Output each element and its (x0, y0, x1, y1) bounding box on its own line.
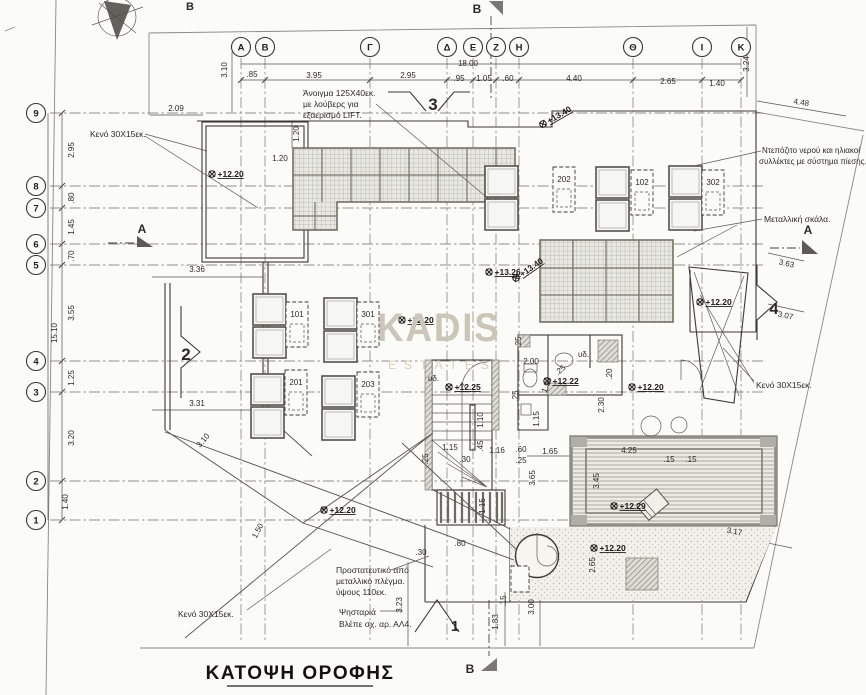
grid-bubble-label: 7 (33, 204, 38, 215)
solar-panel (485, 166, 518, 197)
dim-label: .15 (499, 595, 508, 607)
dim-label: 4.48 (793, 97, 810, 108)
pergola-roof-center (540, 240, 673, 322)
grid-bubble-row: 7 (27, 199, 46, 218)
grid-bubble-label: 1 (33, 516, 39, 527)
unit-number: 301 (361, 310, 375, 319)
dim-label: .15 (685, 455, 697, 464)
dim-label: 2.95 (67, 142, 76, 158)
dim-label: .80 (67, 192, 76, 204)
dim-label: 3.45 (592, 473, 601, 489)
unit-number: 102 (635, 178, 649, 187)
grid-bubble-label: B (262, 43, 269, 54)
elevation-marker: +12.20 (629, 382, 664, 392)
dim-label: .15 (663, 455, 675, 464)
unit-label-box (357, 372, 379, 417)
stool (671, 417, 687, 433)
unit-number: 202 (557, 175, 571, 184)
grid-bubble-column: Γ (361, 38, 380, 57)
section-arrow-a-right (802, 240, 818, 254)
dim-label: .95 (453, 74, 465, 83)
note-text: Προστατευτικό από (336, 565, 409, 575)
grid-bubble-label: 3 (33, 388, 38, 399)
dim-label: 3.10 (220, 62, 229, 78)
detail-number: 4 (770, 301, 779, 318)
dim-label: 1.10 (476, 412, 485, 428)
note-text: Βλέπε σχ. αρ. ΑΛ4. (339, 619, 412, 629)
dim-label: .45 (476, 440, 485, 452)
dim-label: 1.40 (61, 494, 70, 510)
solar-panel (669, 166, 702, 197)
solar-panel (253, 294, 286, 325)
note-text: Κενό 30X15εκ. (756, 380, 812, 390)
elevation-value: +12.20 (706, 297, 733, 307)
dim-label: 1.15 (478, 498, 487, 514)
dim-label: 3.95 (306, 71, 322, 80)
elevation-value: +12.20 (218, 169, 245, 179)
elevation-marker: +12.20 (209, 169, 244, 179)
detail-number: 2 (181, 345, 190, 364)
solar-panel (669, 199, 702, 230)
basin (555, 353, 573, 367)
unit-number: 101 (290, 310, 304, 319)
elevation-value: +12.20 (638, 382, 665, 392)
unit-label-box (631, 170, 653, 215)
note-text: ύψους 110εκ. (336, 587, 387, 597)
unit-number: 201 (289, 378, 303, 387)
dim-label: 3.10 (195, 431, 212, 449)
unit-label-box (286, 302, 308, 347)
dim-label: 2.65 (588, 557, 597, 573)
dim-label: .25 (421, 453, 430, 465)
dim-label: 3.65 (528, 470, 537, 486)
dim-label: 1.15 (532, 411, 541, 427)
plumbing-label: υδ. (428, 374, 439, 383)
elevation-marker: +13.26 (486, 267, 521, 277)
dim-label: .25 (553, 363, 568, 377)
note-text: Μεταλλική σκάλα. (764, 214, 830, 224)
grid-bubble-column: B (256, 38, 275, 57)
grid-bubble-label: Θ (629, 43, 636, 54)
dim-label: 3.63 (778, 258, 796, 270)
grid-bubble-column: E (464, 38, 483, 57)
solar-unit: 302 (669, 166, 724, 230)
dim-label: 2.95 (400, 71, 416, 80)
note-text: Ψησταριά (339, 607, 376, 617)
dim-label: 1.45 (67, 219, 76, 235)
watermark-logo: KADIS (377, 306, 501, 351)
section-letter: B (473, 2, 482, 16)
dim-label: 1.20 (272, 154, 288, 163)
grid-bubble-row: 9 (27, 104, 46, 123)
unit-label-box (702, 170, 724, 215)
unit-label-box (285, 370, 307, 415)
patio (510, 527, 776, 600)
note-text: Κενό 30X15εκ. (90, 129, 146, 139)
elevation-marker: +12.25 (446, 382, 481, 392)
section-letter: B (186, 1, 194, 13)
dim-label: .25 (511, 390, 520, 402)
dim-label: 1.50 (250, 521, 266, 539)
dim-label: 2.09 (168, 104, 184, 113)
dim-label: 1.25 (67, 370, 76, 386)
dim-label: .30 (459, 455, 471, 464)
dim-label: 4.40 (566, 74, 582, 83)
section-letter: B (466, 662, 475, 676)
dim-label: 1.16 (489, 446, 505, 455)
grid-bubble-label: A (238, 43, 245, 54)
dim-label: 3.24 (742, 56, 751, 72)
plumbing-label: υδ. (578, 350, 589, 359)
floor-plan-page: ABΓΔEZHΘIK987654321 20210230210130120120… (0, 0, 866, 695)
grid-bubble-label: 9 (33, 109, 38, 120)
section-letter: A (138, 222, 147, 236)
dim-label: 3.31 (189, 399, 205, 408)
dim-label: .85 (246, 70, 258, 79)
elevation-value: +13.40 (545, 104, 573, 126)
solar-panel (322, 376, 355, 407)
note-text: Κενό 30X15εκ. (178, 609, 234, 619)
dim-label: 15.10 (50, 322, 59, 343)
grid-bubble-column: I (693, 38, 712, 57)
dim-label: 4.25 (621, 446, 637, 455)
grid-bubble-column: A (232, 38, 251, 57)
note-text: Ντεπόζιτο νερού και ηλιακοί (762, 146, 860, 155)
sink (521, 404, 531, 415)
grid-bubble-label: I (701, 43, 704, 54)
note-text: Άνοιγμα 125X40εκ. (303, 88, 376, 98)
dim-label: 3.20 (67, 430, 76, 446)
page-title: ΚΑΤΟΨΗ ΟΡΟΦΗΣ (206, 663, 395, 684)
grid-bubble-column: Δ (438, 38, 457, 57)
solar-unit: 101 (253, 294, 308, 358)
dim-label: 1.05 (476, 74, 492, 83)
dim-label: 18.00 (458, 59, 479, 68)
solar-panel (322, 409, 355, 440)
elevation-value: +12.22 (553, 376, 580, 386)
solar-panel (485, 199, 518, 230)
grid-bubble-row: 1 (27, 511, 46, 530)
dim-label: 1.65 (542, 447, 558, 456)
dim-label: .60 (515, 445, 527, 454)
dim-label: 1.20 (292, 126, 301, 142)
solar-unit: 203 (322, 372, 379, 440)
detail-number: 3 (428, 95, 437, 114)
grid-bubble-label: 2 (33, 477, 38, 488)
dim-label: 2.65 (660, 77, 676, 86)
section-arrow-b-bottom (481, 658, 497, 671)
elevation-value: +12.20 (330, 505, 357, 515)
note-text: με λούβερς για (303, 99, 359, 109)
detail-number: 1 (451, 618, 459, 635)
watermark-subtitle: ESTATES (388, 358, 497, 372)
grid-bubble-label: 8 (33, 182, 38, 193)
elevation-marker: +13.40 (538, 104, 573, 130)
dim-label: 1.15 (442, 443, 458, 452)
grid-bubble-label: Z (493, 43, 499, 54)
dim-label: .25 (515, 456, 527, 465)
dim-label: .25 (514, 336, 523, 348)
grid-bubble-label: Γ (367, 43, 373, 54)
dim-label: 1.83 (491, 614, 500, 630)
note-text: μεταλλικό πλέγμα. (336, 576, 405, 586)
unit-label-box (553, 167, 575, 212)
section-letter: A (804, 223, 813, 237)
dim-label: 3.36 (189, 265, 205, 274)
unit-number: 203 (361, 380, 375, 389)
solar-panel (324, 331, 357, 362)
solar-panel (596, 167, 629, 198)
grid-bubble-label: 5 (33, 261, 39, 272)
solar-panel (596, 200, 629, 231)
dim-label: .20 (605, 368, 614, 380)
section-arrow-b-top (489, 1, 503, 15)
drawing-title: ΚΑΤΟΨΗ ΟΡΟΦΗΣ (206, 663, 395, 686)
grid-bubble-column: Z (487, 38, 506, 57)
grid-bubble-row: 4 (27, 352, 46, 371)
solar-panel (253, 327, 286, 358)
grid-bubble-label: Δ (444, 43, 451, 54)
dim-label: 1.40 (709, 79, 725, 88)
pergola-roof-top (293, 148, 515, 230)
unit-label-box (357, 302, 379, 347)
dim-label: 3.07 (777, 310, 795, 322)
elevation-value: +12.20 (600, 543, 627, 553)
grid-bubble-row: 5 (27, 256, 46, 275)
solar-panel (251, 374, 284, 405)
grid-bubble-label: 6 (33, 240, 38, 251)
dim-label: .80 (454, 539, 466, 548)
grid-bubble-row: 2 (27, 472, 46, 491)
grid-bubble-row: 8 (27, 177, 46, 196)
elevation-value: +12.25 (455, 382, 482, 392)
dim-label: .30 (415, 548, 427, 557)
grid-bubble-row: 3 (27, 383, 46, 402)
stool (641, 416, 661, 436)
unit-number: 302 (706, 178, 720, 187)
solar-panel (324, 298, 357, 329)
grid-bubble-label: 4 (33, 357, 39, 368)
note-text: συλλέκτες με σύστημα πίεσης. (759, 157, 866, 166)
solar-panel (251, 407, 284, 438)
dim-label: .60 (502, 74, 514, 83)
solar-unit: 301 (324, 298, 379, 362)
dim-label: 3.55 (67, 305, 76, 321)
tilted-void (677, 225, 748, 403)
dim-label: 3.23 (395, 597, 404, 613)
dim-label: 2.00 (523, 357, 539, 366)
note-text: εξαερισμό LIFT. (303, 110, 362, 120)
compass-north-icon (92, 0, 143, 40)
grid-bubble-column: K (732, 38, 751, 57)
solar-unit: 102 (596, 167, 653, 231)
grid-bubble-column: H (510, 38, 529, 57)
grid-bubble-label: E (470, 43, 476, 54)
elevation-value: +12.29 (620, 501, 647, 511)
wood-deck (571, 416, 776, 525)
section-arrow-a-left (137, 236, 153, 247)
dim-label: 2.30 (597, 397, 606, 413)
grid-bubble-row: 6 (27, 235, 46, 254)
dim-label: 3.00 (527, 599, 536, 615)
grid-bubble-label: H (516, 43, 523, 54)
grid-bubble-column: Θ (624, 38, 643, 57)
grid-bubble-label: K (738, 43, 745, 54)
solar-unit: 201 (251, 370, 307, 438)
dim-label: .70 (67, 250, 76, 262)
